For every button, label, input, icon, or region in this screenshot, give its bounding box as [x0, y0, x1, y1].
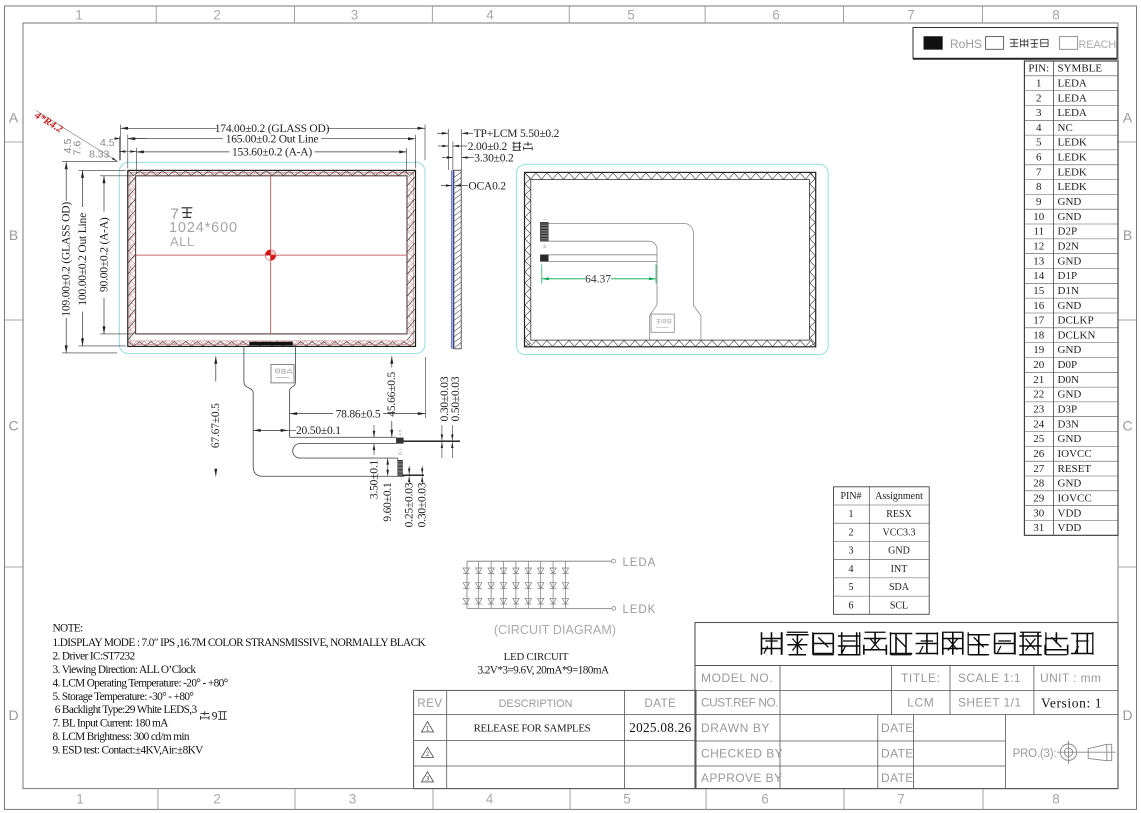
svg-text:RELEASE FOR SAMPLES: RELEASE FOR SAMPLES [474, 723, 591, 735]
svg-text:Version: 1: Version: 1 [1041, 696, 1102, 711]
svg-text:2: 2 [213, 792, 221, 807]
svg-text:109.00±0.2 (GLASS OD): 109.00±0.2 (GLASS OD) [61, 202, 73, 317]
svg-text:6: 6 [761, 792, 769, 807]
svg-text:NC: NC [1058, 122, 1073, 134]
svg-text:SYMBLE: SYMBLE [1058, 63, 1103, 75]
svg-text:13: 13 [1033, 255, 1045, 267]
svg-text:165.00±0.2 Out Line: 165.00±0.2 Out Line [226, 133, 319, 145]
svg-text:1: 1 [1036, 77, 1042, 89]
svg-text:GND: GND [888, 546, 910, 557]
svg-text:18: 18 [1033, 329, 1045, 341]
svg-text:6 Backlight Type:29 White LEDS: 6 Backlight Type:29 White LEDS,3 [53, 704, 198, 716]
svg-text:8: 8 [1052, 792, 1060, 807]
svg-text:D2P: D2P [1058, 226, 1078, 238]
svg-text:29: 29 [1033, 493, 1045, 505]
svg-text:GND: GND [1058, 344, 1082, 356]
svg-text:5: 5 [623, 792, 631, 807]
svg-text:2.00±0.2: 2.00±0.2 [468, 141, 508, 153]
svg-text:SCL: SCL [890, 600, 908, 611]
svg-text:8.33: 8.33 [89, 149, 110, 161]
svg-text:6: 6 [1036, 152, 1042, 164]
svg-text:DATE: DATE [881, 721, 914, 735]
svg-text:5: 5 [627, 8, 635, 23]
svg-text:PIN:: PIN: [1028, 63, 1049, 75]
svg-text:3: 3 [849, 546, 854, 557]
svg-text:SDA: SDA [889, 582, 910, 593]
svg-text:2. Driver IC:ST7232: 2. Driver IC:ST7232 [53, 651, 136, 663]
svg-text:7. BL Input Current: 180 mA: 7. BL Input Current: 180 mA [53, 718, 170, 730]
svg-text:DESCRIPTION: DESCRIPTION [499, 698, 573, 710]
svg-text:3: 3 [1036, 107, 1042, 119]
svg-text:ALL: ALL [170, 234, 195, 249]
svg-text:1: 1 [75, 8, 83, 23]
svg-text:3: 3 [351, 8, 359, 23]
svg-text:Assignment: Assignment [875, 491, 923, 502]
svg-text:1: 1 [426, 726, 430, 733]
svg-text:64.37: 64.37 [585, 273, 611, 285]
svg-text:0.30±0.03: 0.30±0.03 [417, 482, 429, 527]
svg-text:1: 1 [849, 509, 854, 520]
svg-text:3. Viewing Direction: ALL O’Cl: 3. Viewing Direction: ALL O’Clock [53, 664, 197, 676]
svg-text:2: 2 [213, 8, 221, 23]
svg-text:1: 1 [542, 218, 547, 220]
svg-text:DCLKN: DCLKN [1058, 329, 1096, 341]
svg-text:D1N: D1N [1058, 285, 1079, 297]
svg-text:2025.08.26: 2025.08.26 [629, 720, 691, 735]
svg-text:D3N: D3N [1058, 418, 1079, 430]
svg-text:RoHS: RoHS [950, 37, 982, 51]
svg-text:GND: GND [1058, 433, 1082, 445]
svg-text:90.00±0.2 (A-A): 90.00±0.2 (A-A) [98, 217, 110, 292]
svg-text:LEDA: LEDA [623, 557, 657, 569]
svg-text:LEDA: LEDA [1058, 92, 1087, 104]
svg-text:C: C [1122, 418, 1132, 434]
svg-text:30: 30 [1033, 507, 1045, 519]
svg-text:4: 4 [486, 792, 494, 807]
svg-text:2: 2 [849, 527, 854, 538]
svg-text:6: 6 [849, 600, 854, 611]
svg-text:D: D [1122, 707, 1132, 723]
svg-text:153.60±0.2 (A-A): 153.60±0.2 (A-A) [232, 147, 312, 159]
svg-text:PRO.(3):: PRO.(3): [1013, 748, 1057, 760]
svg-text:25: 25 [1033, 433, 1045, 445]
svg-text:GND: GND [1058, 211, 1082, 223]
svg-text:CUST.REF NO.: CUST.REF NO. [701, 696, 778, 710]
svg-text:NOTE:: NOTE: [53, 623, 84, 635]
svg-text:19: 19 [1033, 344, 1045, 356]
svg-text:9.60±0.1: 9.60±0.1 [382, 482, 394, 522]
svg-text:SHEET 1/1: SHEET 1/1 [958, 696, 1021, 710]
svg-text:DRAWN BY: DRAWN BY [701, 721, 770, 735]
svg-text:C: C [8, 418, 18, 434]
svg-text:4 9: 4 9 [398, 429, 403, 435]
svg-text:22: 22 [1033, 389, 1044, 401]
svg-text:DATE: DATE [881, 771, 914, 785]
svg-text:CHECKED BY: CHECKED BY [701, 747, 783, 761]
svg-text:LEDK: LEDK [1058, 137, 1087, 149]
svg-text:7: 7 [897, 792, 905, 807]
svg-text:VCC3.3: VCC3.3 [882, 527, 915, 538]
svg-text:3.2V*3=9.6V, 20mA*9=180mA: 3.2V*3=9.6V, 20mA*9=180mA [477, 665, 609, 677]
svg-text:20: 20 [1033, 359, 1045, 371]
svg-text:LEDA: LEDA [1058, 107, 1087, 119]
svg-text:D: D [8, 707, 18, 723]
svg-text:VDD: VDD [1058, 522, 1082, 534]
svg-text:4: 4 [1036, 122, 1042, 134]
svg-text:8. LCM Brightness: 300 cd/m m: 8. LCM Brightness: 300 cd/m min [53, 731, 190, 743]
svg-text:LEDA: LEDA [1058, 77, 1087, 89]
svg-text:3.50±0.1: 3.50±0.1 [368, 459, 380, 499]
svg-text:78.86±0.5: 78.86±0.5 [336, 408, 381, 420]
svg-text:LEDK: LEDK [623, 604, 657, 616]
svg-text:26: 26 [1033, 448, 1045, 460]
svg-text:21: 21 [1033, 374, 1044, 386]
svg-text:LED CIRCUIT: LED CIRCUIT [504, 651, 569, 663]
svg-text:RESX: RESX [886, 509, 912, 520]
svg-text:10: 10 [1033, 211, 1045, 223]
svg-text:DCLKP: DCLKP [1058, 315, 1094, 327]
svg-text:1: 1 [400, 476, 402, 481]
svg-text:GND: GND [1058, 389, 1082, 401]
svg-text:TITLE:: TITLE: [901, 671, 941, 685]
svg-text:0.25±0.03: 0.25±0.03 [404, 482, 416, 527]
svg-text:B: B [9, 227, 18, 243]
svg-text:3: 3 [426, 776, 430, 783]
svg-text:D3P: D3P [1058, 404, 1078, 416]
svg-text:GND: GND [1058, 196, 1082, 208]
svg-text:VDD: VDD [1058, 507, 1082, 519]
svg-text:1: 1 [76, 792, 84, 807]
svg-text:15: 15 [1033, 285, 1045, 297]
svg-text:TP+LCM 5.50±0.2: TP+LCM 5.50±0.2 [474, 128, 560, 140]
svg-text:INT: INT [891, 564, 908, 575]
svg-text:11: 11 [1034, 226, 1045, 238]
svg-text:GND: GND [1058, 300, 1082, 312]
svg-text:16: 16 [1033, 300, 1045, 312]
svg-text:14: 14 [1033, 270, 1045, 282]
svg-text:D1P: D1P [1058, 270, 1078, 282]
svg-text:LEDK: LEDK [1058, 152, 1087, 164]
svg-text:LEDK: LEDK [1058, 181, 1087, 193]
svg-text:7.6: 7.6 [72, 141, 84, 156]
svg-text:3: 3 [349, 792, 357, 807]
svg-text:2: 2 [426, 751, 430, 758]
svg-text:28: 28 [1033, 478, 1045, 490]
svg-text:5: 5 [849, 582, 854, 593]
svg-text:(CIRCUIT DIAGRAM): (CIRCUIT DIAGRAM) [494, 623, 616, 637]
svg-text:8: 8 [1036, 181, 1042, 193]
svg-text:DATE: DATE [881, 747, 914, 761]
svg-text:4.5: 4.5 [100, 137, 115, 149]
svg-text:D2N: D2N [1058, 241, 1079, 253]
svg-text:MODEL NO.: MODEL NO. [701, 671, 773, 685]
svg-text:LCM: LCM [907, 696, 934, 710]
svg-text:4: 4 [486, 8, 494, 23]
svg-text:7: 7 [907, 8, 915, 23]
svg-text:1.DISPLAY MODE : 7.0″ IPS ,16.: 1.DISPLAY MODE : 7.0″ IPS ,16.7M COLOR S… [53, 637, 427, 649]
svg-text:A: A [1123, 110, 1133, 126]
svg-text:16: 16 [542, 244, 547, 249]
svg-text:9. ESD test: Contact:±4KV,Air:: 9. ESD test: Contact:±4KV,Air:±8KV [53, 745, 205, 757]
svg-text:SCALE 1:1: SCALE 1:1 [958, 671, 1021, 685]
svg-text:100.00±0.2 Out Line: 100.00±0.2 Out Line [77, 213, 89, 306]
svg-text:1E (: 1E ( [398, 448, 403, 456]
svg-text:20.50±0.1: 20.50±0.1 [296, 425, 341, 437]
svg-text:24: 24 [1033, 418, 1045, 430]
svg-text:D0N: D0N [1058, 374, 1079, 386]
svg-text:REACH: REACH [1079, 39, 1117, 51]
svg-text:RESET: RESET [1058, 463, 1092, 475]
svg-text:7: 7 [1036, 166, 1042, 178]
svg-text:OCA0.2: OCA0.2 [468, 180, 506, 192]
svg-text:DATE: DATE [644, 698, 676, 710]
svg-text:3.30±0.2: 3.30±0.2 [474, 152, 514, 164]
svg-text:IOVCC: IOVCC [1058, 448, 1092, 460]
svg-text:27: 27 [1033, 463, 1045, 475]
svg-text:4: 4 [849, 564, 854, 575]
svg-text:APPROVE BY: APPROVE BY [701, 771, 782, 785]
svg-text:UNIT : mm: UNIT : mm [1040, 671, 1101, 685]
svg-text:PIN#: PIN# [840, 491, 861, 502]
svg-text:2: 2 [1036, 92, 1042, 104]
svg-text:GND: GND [1058, 255, 1082, 267]
svg-text:LEDK: LEDK [1058, 166, 1087, 178]
svg-text:12: 12 [1033, 241, 1044, 253]
svg-text:REV: REV [417, 698, 442, 710]
svg-text:D0P: D0P [1058, 359, 1078, 371]
svg-text:6: 6 [772, 8, 780, 23]
svg-text:5. Storage Temperature: -30° -: 5. Storage Temperature: -30° - +80° [53, 691, 194, 703]
svg-text:67.67±0.5: 67.67±0.5 [210, 403, 222, 448]
svg-text:8: 8 [1052, 8, 1060, 23]
svg-text:4. LCM Operating Temperature:: 4. LCM Operating Temperature: -20° - +80… [53, 677, 228, 689]
svg-text:4*R4.2: 4*R4.2 [32, 110, 65, 136]
svg-text:A: A [9, 110, 19, 126]
svg-text:5: 5 [1036, 137, 1042, 149]
svg-text:0.50±0.03: 0.50±0.03 [450, 376, 462, 421]
svg-text:9: 9 [1036, 196, 1042, 208]
svg-text:31: 31 [1033, 522, 1044, 534]
svg-text:23: 23 [1033, 404, 1045, 416]
svg-text:B: B [1123, 227, 1132, 243]
svg-text:GND: GND [1058, 478, 1082, 490]
svg-text:45.66±0.5: 45.66±0.5 [386, 371, 398, 416]
svg-text:9: 9 [212, 711, 218, 723]
svg-text:17: 17 [1033, 315, 1045, 327]
svg-text:IOVCC: IOVCC [1058, 493, 1092, 505]
